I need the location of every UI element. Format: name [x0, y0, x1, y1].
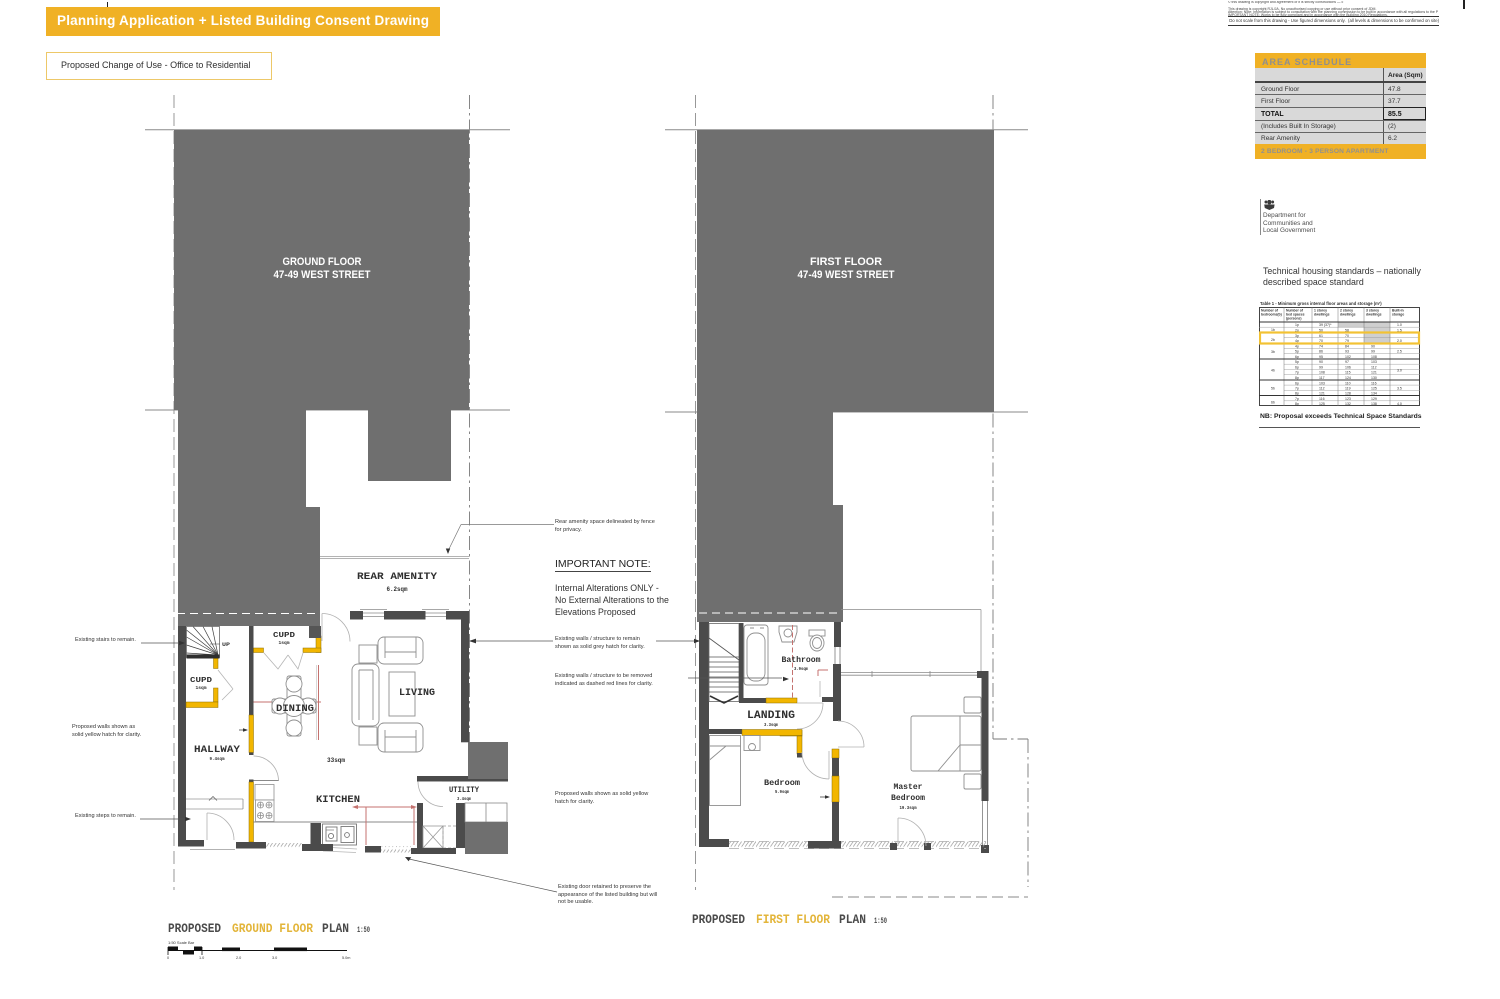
svg-text:1sqm: 1sqm	[196, 687, 208, 691]
svg-text:Bathroom: Bathroom	[782, 656, 821, 665]
svg-text:LANDING: LANDING	[747, 710, 795, 722]
svg-text:1:50: 1:50	[874, 916, 887, 926]
svg-text:Bedroom: Bedroom	[891, 794, 925, 803]
svg-text:GROUND FLOOR: GROUND FLOOR	[232, 921, 313, 936]
svg-text:3.9sqm: 3.9sqm	[794, 666, 808, 672]
svg-text:GROUND FLOOR: GROUND FLOOR	[283, 256, 362, 268]
svg-text:FIRST FLOOR: FIRST FLOOR	[756, 912, 830, 927]
svg-text:Bedroom: Bedroom	[764, 779, 800, 788]
svg-text:UTILITY: UTILITY	[449, 785, 480, 795]
svg-text:47-49 WEST STREET: 47-49 WEST STREET	[274, 269, 371, 281]
svg-text:0: 0	[167, 956, 169, 960]
svg-text:REAR AMENITY: REAR AMENITY	[357, 571, 438, 583]
svg-text:1.0: 1.0	[199, 956, 204, 960]
svg-text:Master: Master	[894, 783, 923, 792]
svg-text:2.0: 2.0	[236, 956, 241, 960]
svg-text:LIVING: LIVING	[399, 688, 435, 699]
svg-text:9.4sqm: 9.4sqm	[210, 756, 225, 762]
svg-text:19.3sqm: 19.3sqm	[900, 805, 917, 811]
svg-text:CUPD: CUPD	[190, 677, 213, 685]
svg-text:FIRST FLOOR: FIRST FLOOR	[810, 256, 882, 268]
svg-text:PLAN: PLAN	[839, 912, 866, 927]
svg-text:KITCHEN: KITCHEN	[316, 795, 360, 806]
svg-text:3.0: 3.0	[272, 956, 277, 960]
svg-text:6.2sqm: 6.2sqm	[387, 586, 408, 593]
svg-text:1:50 Scale Bar: 1:50 Scale Bar	[168, 940, 195, 945]
svg-text:5.0m: 5.0m	[342, 956, 350, 960]
svg-text:UP: UP	[222, 641, 231, 648]
svg-text:47-49 WEST STREET: 47-49 WEST STREET	[798, 269, 895, 281]
svg-text:HALLWAY: HALLWAY	[194, 745, 240, 756]
svg-text:DINING: DINING	[276, 704, 314, 715]
svg-text:3.4sqm: 3.4sqm	[457, 796, 471, 802]
svg-text:CUPD: CUPD	[273, 632, 296, 640]
svg-text:3.3sqm: 3.3sqm	[764, 722, 778, 728]
svg-text:5.9sqm: 5.9sqm	[775, 789, 789, 795]
svg-text:1:50: 1:50	[357, 925, 370, 935]
svg-text:33sqm: 33sqm	[327, 757, 345, 764]
svg-text:PLAN: PLAN	[322, 921, 349, 936]
svg-text:PROPOSED: PROPOSED	[168, 921, 221, 936]
svg-text:1sqm: 1sqm	[279, 642, 291, 646]
svg-text:PROPOSED: PROPOSED	[692, 912, 745, 927]
